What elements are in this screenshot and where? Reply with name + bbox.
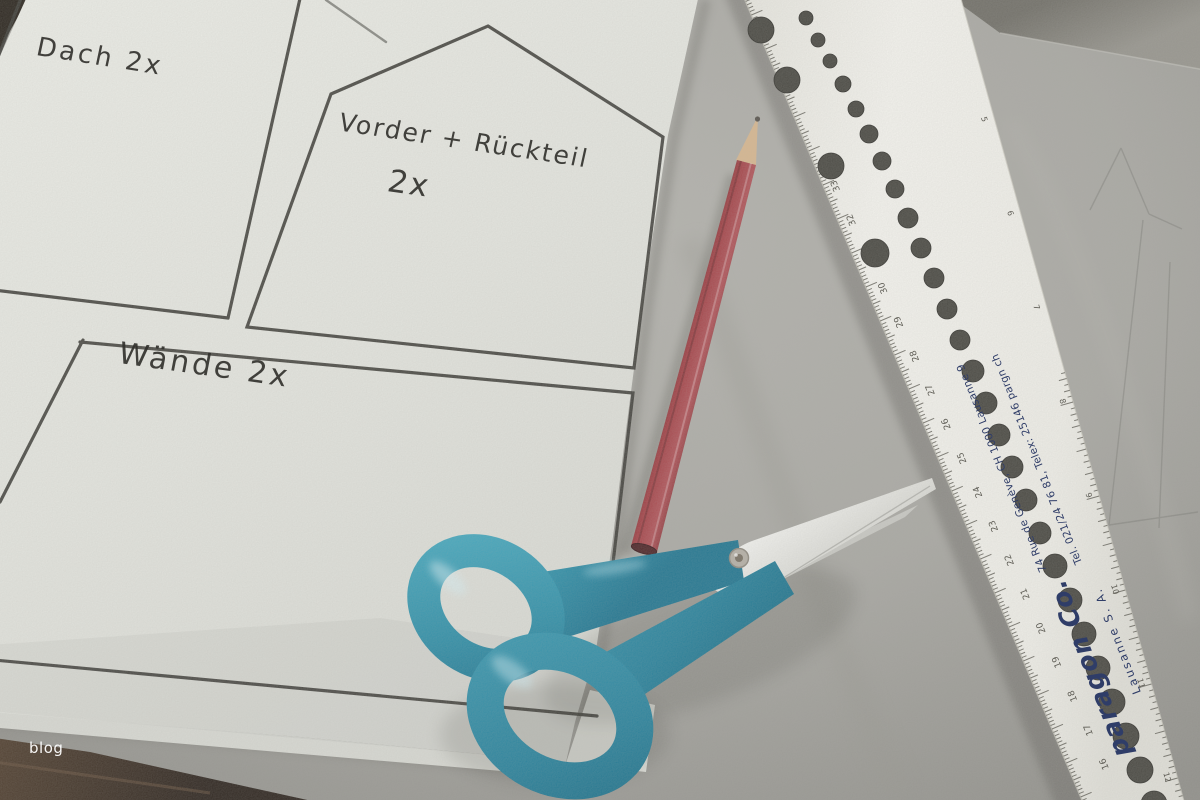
- front-back-count-label: 2x: [384, 163, 433, 204]
- watermark: blog: [29, 739, 63, 757]
- craft-photo-scene: 1617181920212223242526272829303132335678…: [0, 0, 1200, 800]
